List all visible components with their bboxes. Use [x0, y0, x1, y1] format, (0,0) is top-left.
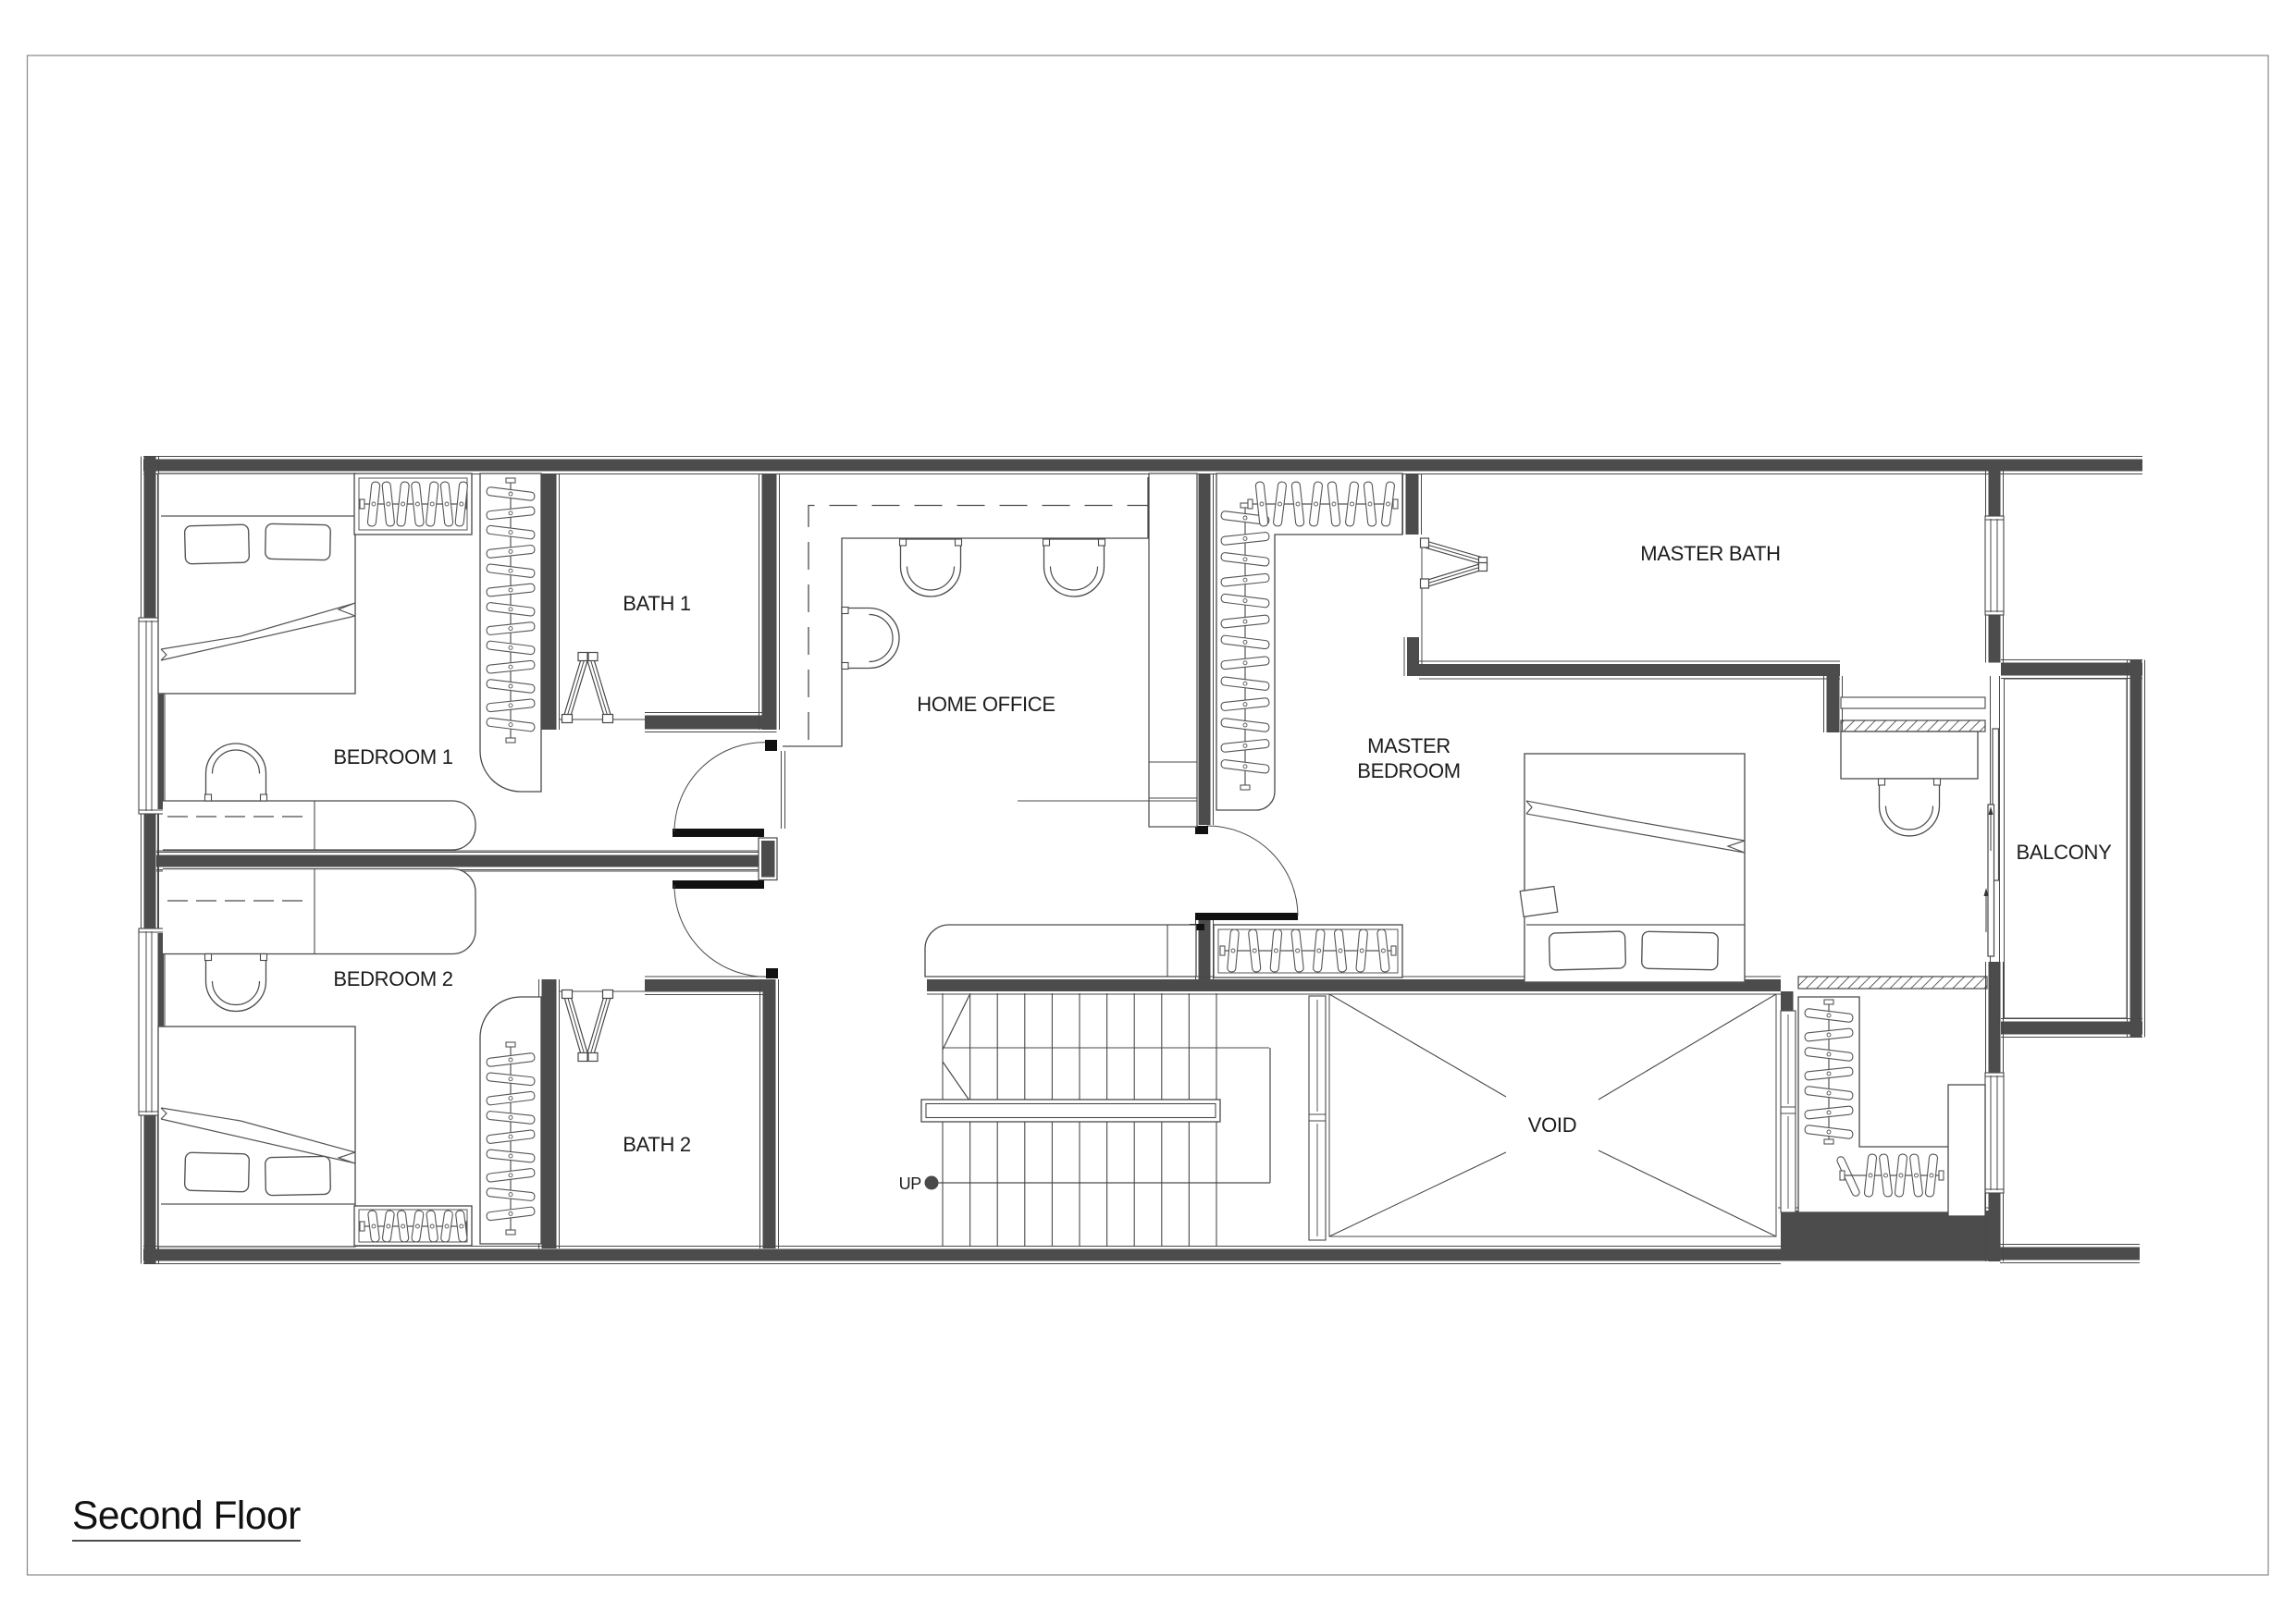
svg-text:BATH 2: BATH 2	[623, 1133, 691, 1156]
svg-text:HOME OFFICE: HOME OFFICE	[917, 693, 1055, 716]
svg-text:MASTER: MASTER	[1367, 734, 1450, 757]
svg-text:Second Floor: Second Floor	[72, 1494, 301, 1538]
svg-text:MASTER BATH: MASTER BATH	[1640, 542, 1781, 565]
svg-text:UP: UP	[899, 1174, 922, 1193]
svg-text:BATH 1: BATH 1	[623, 592, 691, 615]
svg-text:BEDROOM: BEDROOM	[1357, 759, 1461, 782]
svg-text:VOID: VOID	[1528, 1113, 1577, 1137]
svg-text:BALCONY: BALCONY	[2016, 841, 2112, 864]
svg-text:BEDROOM 1: BEDROOM 1	[333, 745, 452, 768]
svg-text:BEDROOM 2: BEDROOM 2	[333, 967, 452, 990]
